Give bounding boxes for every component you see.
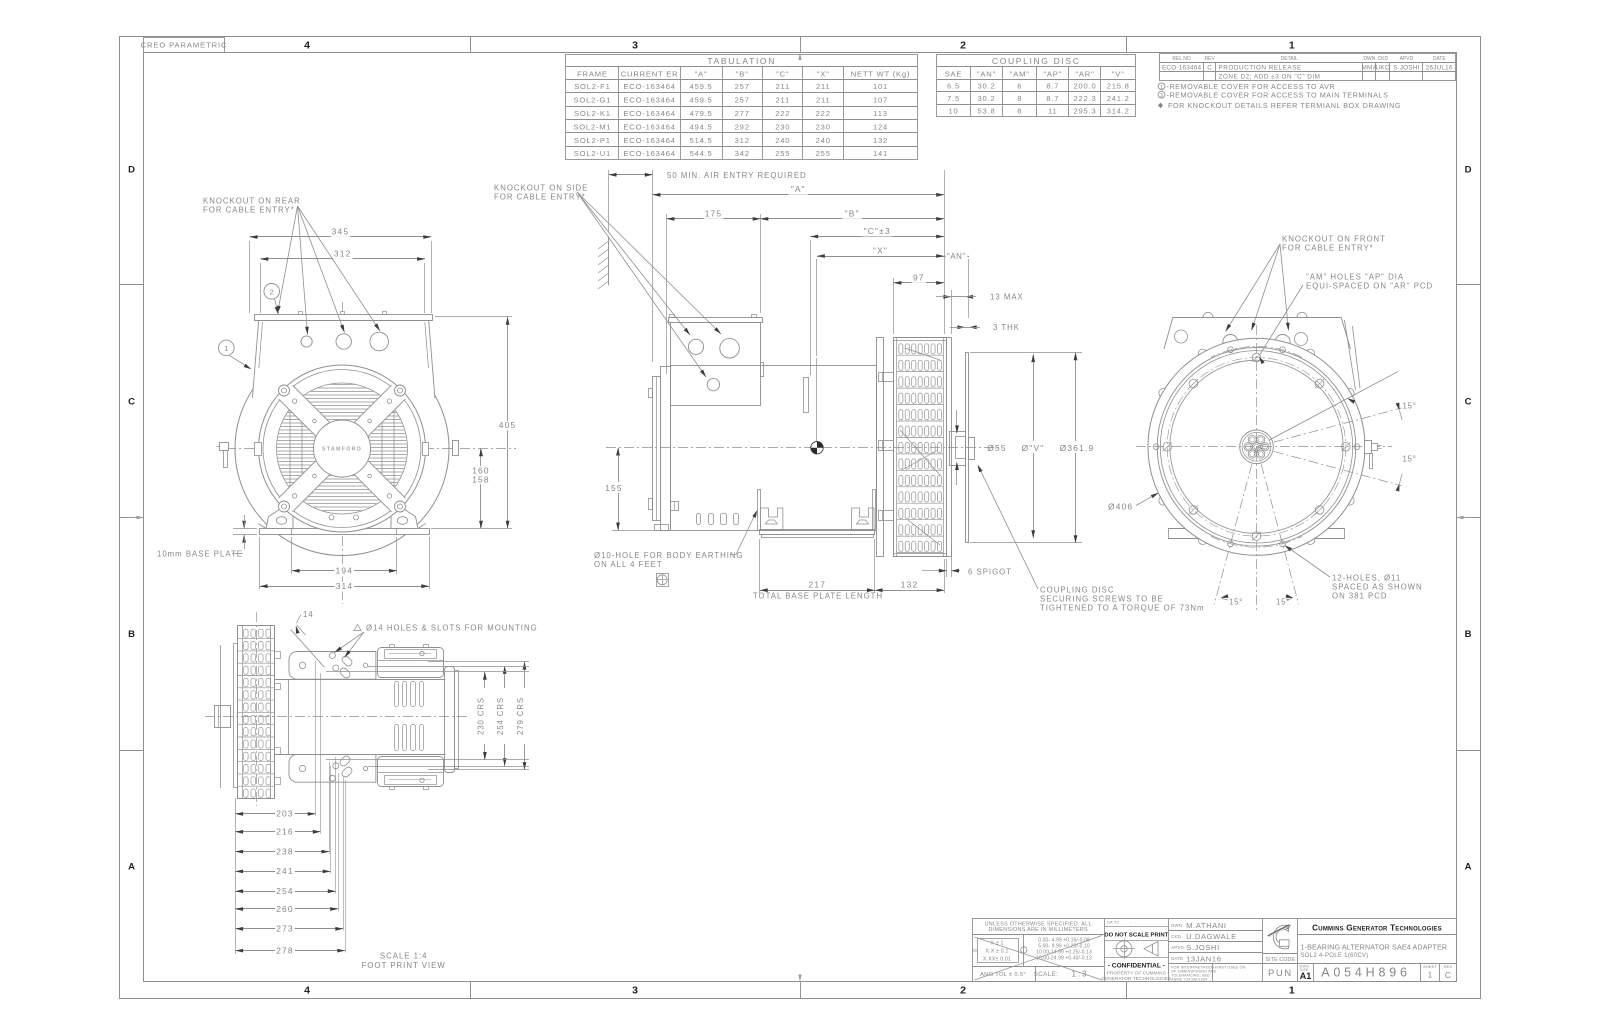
svg-text:B: B	[1465, 629, 1472, 640]
svg-text:314: 314	[336, 581, 354, 591]
svg-text:REV: REV	[1444, 964, 1453, 969]
svg-text:"B": "B"	[736, 69, 749, 78]
svg-text:U.DAGWALE: U.DAGWALE	[1186, 932, 1237, 941]
svg-text:1: 1	[1160, 85, 1163, 91]
svg-text:141: 141	[873, 149, 888, 158]
svg-text:3: 3	[632, 40, 638, 52]
svg-text:Ø361.9: Ø361.9	[1060, 443, 1095, 453]
svg-text:10.00-14.99 +0.25/-0.13: 10.00-14.99 +0.25/-0.13	[1036, 950, 1092, 956]
svg-text:15°: 15°	[1276, 598, 1290, 607]
svg-text:1: 1	[1428, 971, 1433, 980]
svg-text:279 CRS: 279 CRS	[516, 697, 525, 735]
svg-text:15°: 15°	[1403, 402, 1417, 411]
svg-text:30.2: 30.2	[978, 82, 996, 91]
svg-text:97: 97	[913, 272, 925, 282]
svg-text:SITE CODE: SITE CODE	[1265, 957, 1295, 963]
svg-text:KNOCKOUT ON REAR: KNOCKOUT ON REAR	[203, 197, 301, 206]
svg-text:ECO-163464: ECO-163464	[623, 96, 675, 105]
svg-text:X.XX± 0.01: X.XX± 0.01	[983, 957, 1011, 963]
svg-text:200.0: 200.0	[1073, 82, 1096, 91]
svg-text:S.JOSHI: S.JOSHI	[1393, 65, 1419, 72]
svg-text:DIMENSIONS ARE IN MILLIMETERS: DIMENSIONS ARE IN MILLIMETERS	[988, 927, 1088, 933]
svg-text:SOL2-F1: SOL2-F1	[574, 82, 610, 91]
svg-text:"A": "A"	[791, 184, 806, 194]
svg-text:101: 101	[873, 82, 888, 91]
svg-text:ANG TOL ± 0.5°: ANG TOL ± 0.5°	[980, 972, 1026, 978]
svg-text:"X": "X"	[873, 245, 888, 255]
svg-text:312: 312	[334, 248, 352, 258]
svg-text:C: C	[128, 397, 135, 408]
svg-text:M.ATHANI: M.ATHANI	[1186, 921, 1227, 930]
svg-text:DATE: DATE	[1171, 956, 1183, 961]
svg-text:26JUL16: 26JUL16	[1426, 65, 1453, 72]
svg-text:SPACED AS SHOWN: SPACED AS SHOWN	[1332, 583, 1423, 592]
svg-text:10mm BASE PLATE: 10mm BASE PLATE	[157, 550, 243, 559]
svg-text:8.7: 8.7	[1046, 82, 1059, 91]
svg-text:459.5: 459.5	[690, 96, 713, 105]
svg-text:SOL2-U1: SOL2-U1	[574, 149, 611, 158]
svg-text:Ø14 HOLES & SLOTS FOR MOUNTING: Ø14 HOLES & SLOTS FOR MOUNTING	[366, 624, 538, 633]
svg-text:494.5: 494.5	[690, 122, 713, 131]
svg-text:292: 292	[735, 122, 750, 131]
svg-text:FOOT PRINT VIEW: FOOT PRINT VIEW	[362, 961, 446, 970]
svg-text:15°: 15°	[1403, 455, 1417, 464]
svg-text:"AN": "AN"	[977, 69, 996, 78]
svg-text:479.5: 479.5	[690, 109, 713, 118]
svg-text:132: 132	[901, 580, 919, 590]
svg-text:211: 211	[776, 82, 791, 91]
svg-text:211: 211	[816, 96, 831, 105]
svg-text:113: 113	[873, 109, 888, 118]
svg-text:53.8: 53.8	[978, 107, 996, 116]
svg-text:SOL2-K1: SOL2-K1	[574, 109, 611, 118]
svg-text:Ø"V": Ø"V"	[1022, 443, 1045, 453]
svg-text:"AR": "AR"	[1075, 69, 1094, 78]
svg-text:215.8: 215.8	[1107, 82, 1130, 91]
svg-text:1: 1	[224, 344, 228, 353]
svg-text:C: C	[1207, 65, 1212, 72]
svg-text:A: A	[1465, 861, 1472, 872]
svg-text:DWN: DWN	[1171, 923, 1182, 928]
svg-text:124: 124	[873, 122, 888, 131]
svg-text:211: 211	[776, 96, 791, 105]
svg-text:COUPLING DISC: COUPLING DISC	[1040, 586, 1115, 595]
svg-text:SECURING SCREWS TO BE: SECURING SCREWS TO BE	[1040, 595, 1164, 604]
svg-text:260: 260	[276, 904, 294, 914]
svg-text:PROPERTY OF CUMMINS: PROPERTY OF CUMMINS	[1107, 970, 1166, 975]
svg-text:217: 217	[809, 580, 827, 590]
svg-text:COUPLING DISC: COUPLING DISC	[992, 56, 1081, 66]
svg-text:"B": "B"	[845, 208, 860, 218]
svg-text:345: 345	[332, 226, 350, 236]
svg-text:13 MAX: 13 MAX	[990, 293, 1024, 302]
svg-text:2: 2	[960, 985, 966, 997]
svg-text:255: 255	[816, 149, 831, 158]
svg-text:222: 222	[775, 109, 790, 118]
svg-text:S.JOSHI: S.JOSHI	[1186, 943, 1220, 952]
svg-text:222.3: 222.3	[1073, 94, 1096, 103]
svg-text:230: 230	[816, 122, 831, 131]
svg-text:UKO: UKO	[1376, 65, 1390, 72]
svg-text:REV: REV	[1205, 56, 1216, 62]
svg-text:544.5: 544.5	[690, 149, 713, 158]
svg-text:"AM": "AM"	[1010, 69, 1030, 78]
svg-text:-: -	[1130, 921, 1132, 925]
svg-text:3: 3	[632, 985, 638, 997]
svg-text:ECO-163464: ECO-163464	[623, 136, 675, 145]
svg-text:M: M	[973, 948, 977, 953]
svg-text:1: 1	[1289, 40, 1295, 52]
svg-text:405: 405	[499, 420, 517, 430]
svg-text:TIGHTENED TO A TORQUE OF 73Nm: TIGHTENED TO A TORQUE OF 73Nm	[1040, 604, 1204, 613]
svg-text:12-HOLES, Ø11: 12-HOLES, Ø11	[1332, 574, 1401, 583]
svg-text:254 CRS: 254 CRS	[496, 697, 505, 735]
svg-text:SCALE 1:4: SCALE 1:4	[380, 952, 428, 961]
svg-text:CURRENT ER: CURRENT ER	[621, 69, 679, 78]
svg-text:3: 3	[1160, 93, 1163, 99]
svg-text:B: B	[128, 629, 135, 640]
svg-text:238: 238	[276, 846, 294, 856]
svg-text:SHEET: SHEET	[1423, 964, 1437, 969]
svg-text:SCALE:: SCALE:	[1034, 971, 1058, 978]
svg-text:FIRST USED ON: FIRST USED ON	[1215, 965, 1246, 969]
svg-text:158: 158	[472, 475, 490, 485]
svg-text:Ø55: Ø55	[987, 443, 1006, 453]
svg-text:8: 8	[1017, 94, 1022, 103]
svg-text:1: 1	[1289, 985, 1295, 997]
svg-text:273: 273	[276, 924, 294, 934]
svg-text:DO NOT SCALE PRINT: DO NOT SCALE PRINT	[1104, 933, 1168, 939]
svg-text:Ø406: Ø406	[1108, 502, 1133, 512]
svg-text:6 SPIGOT: 6 SPIGOT	[968, 568, 1012, 577]
svg-text:ON ALL 4 FEET: ON ALL 4 FEET	[594, 560, 663, 569]
svg-text:194: 194	[336, 566, 354, 576]
svg-text:2: 2	[960, 40, 966, 52]
svg-text:241: 241	[276, 866, 294, 876]
svg-text:257: 257	[735, 82, 750, 91]
svg-text:6.5: 6.5	[947, 82, 960, 91]
svg-text:ECO-163464: ECO-163464	[623, 122, 675, 131]
svg-text:REL NO: REL NO	[1172, 56, 1191, 62]
svg-text:1-BEARING ALTERNATOR SAE4 ADAP: 1-BEARING ALTERNATOR SAE4 ADAPTER	[1301, 943, 1448, 952]
svg-text:TOTAL BASE PLATE LENGTH: TOTAL BASE PLATE LENGTH	[753, 592, 883, 601]
svg-text:6: 6	[1017, 82, 1022, 91]
svg-text:TABULATION: TABULATION	[707, 56, 776, 66]
svg-text:10: 10	[948, 107, 958, 116]
svg-text:203: 203	[276, 809, 294, 819]
svg-text:A: A	[128, 861, 135, 872]
svg-text:"A": "A"	[695, 69, 708, 78]
svg-text:C: C	[1465, 397, 1472, 408]
svg-text:PRODUCTION RELEASE: PRODUCTION RELEASE	[1219, 65, 1302, 72]
svg-text:107: 107	[873, 96, 888, 105]
svg-text:SOL2-M1: SOL2-M1	[573, 122, 611, 131]
svg-text:257: 257	[735, 96, 750, 105]
svg-text:13JAN16: 13JAN16	[1186, 954, 1221, 963]
svg-text:-REMOVABLE COVER FOR ACCESS TO: -REMOVABLE COVER FOR ACCESS TO MAIN TERM…	[1167, 91, 1389, 100]
svg-text:11: 11	[1048, 107, 1057, 116]
svg-text:254: 254	[276, 886, 294, 896]
svg-text:ECO-163464: ECO-163464	[623, 82, 675, 91]
svg-text:SAE: SAE	[945, 69, 963, 78]
svg-text:CKD: CKD	[1171, 934, 1181, 939]
svg-text:DETAIL: DETAIL	[1281, 56, 1298, 62]
svg-text:APVD: APVD	[1400, 56, 1414, 62]
svg-text:14: 14	[303, 610, 314, 619]
svg-text:1:3: 1:3	[1071, 970, 1088, 979]
svg-text:314.2: 314.2	[1107, 107, 1130, 116]
svg-text:FOR KNOCKOUT DETAILS REFER TER: FOR KNOCKOUT DETAILS REFER TERMIANL BOX …	[1168, 101, 1401, 110]
svg-text:241.2: 241.2	[1107, 94, 1130, 103]
svg-text:Ø10-HOLE FOR BODY EARTHING: Ø10-HOLE FOR BODY EARTHING	[594, 551, 744, 560]
svg-text:"AM" HOLES "AP" DIA: "AM" HOLES "AP" DIA	[1306, 273, 1404, 282]
svg-text:459.5: 459.5	[690, 82, 713, 91]
svg-text:4: 4	[304, 985, 310, 997]
svg-text:SOL2-P1: SOL2-P1	[574, 136, 611, 145]
svg-text:SOL2 4-POLE 1(60CV): SOL2 4-POLE 1(60CV)	[1301, 953, 1369, 959]
svg-text:FOR CABLE ENTRY*: FOR CABLE ENTRY*	[203, 206, 295, 215]
svg-text:FOR CABLE ENTRY*: FOR CABLE ENTRY*	[1282, 244, 1374, 253]
svg-text:211: 211	[816, 82, 831, 91]
svg-text:132: 132	[873, 136, 888, 145]
svg-text:"C": "C"	[776, 69, 789, 78]
svg-text:155: 155	[605, 483, 623, 493]
svg-text:295.3: 295.3	[1073, 107, 1096, 116]
svg-text:X ± 1: X ± 1	[990, 941, 1003, 947]
svg-text:D: D	[128, 165, 135, 176]
svg-text:A054H896: A054H896	[1321, 966, 1410, 980]
svg-text:D: D	[1465, 165, 1472, 176]
svg-text:CREO PARAMETRIC: CREO PARAMETRIC	[141, 41, 228, 50]
svg-text:175: 175	[705, 208, 723, 218]
svg-text:ZONE D2; ADD ±3 ON "C" DIM: ZONE D2; ADD ±3 ON "C" DIM	[1219, 74, 1321, 81]
svg-text:FOR CABLE ENTRY*: FOR CABLE ENTRY*	[494, 193, 586, 202]
svg-text:"X": "X"	[817, 69, 830, 78]
svg-text:8.7: 8.7	[1046, 94, 1059, 103]
svg-text:DATE: DATE	[1433, 56, 1447, 62]
svg-text:STAMFORD: STAMFORD	[322, 447, 362, 453]
svg-text:"AN": "AN"	[947, 252, 966, 261]
svg-text:222: 222	[816, 109, 831, 118]
svg-text:GA TO: GA TO	[1107, 921, 1119, 925]
svg-text:4: 4	[304, 40, 310, 52]
svg-text:"C"±3: "C"±3	[864, 226, 891, 236]
svg-text:7.5: 7.5	[947, 94, 960, 103]
svg-text:2: 2	[270, 287, 274, 296]
svg-text:30.2: 30.2	[978, 94, 996, 103]
svg-text:278: 278	[276, 945, 294, 955]
svg-text:ECO-163464: ECO-163464	[623, 149, 675, 158]
svg-text:KNOCKOUT ON FRONT: KNOCKOUT ON FRONT	[1282, 235, 1386, 244]
svg-text:"V": "V"	[1112, 69, 1125, 78]
svg-text:PUN: PUN	[1268, 968, 1293, 979]
svg-text:15°: 15°	[1229, 598, 1243, 607]
svg-text:312: 312	[735, 136, 750, 145]
svg-text:8: 8	[1017, 107, 1022, 116]
svg-text:"AP": "AP"	[1043, 69, 1062, 78]
svg-text:EQUI-SPACED ON "AR" PCD: EQUI-SPACED ON "AR" PCD	[1306, 282, 1433, 291]
svg-text:240: 240	[816, 136, 831, 145]
svg-text:ON 381 PCD: ON 381 PCD	[1332, 592, 1388, 601]
svg-text:X.X ± 0.1: X.X ± 0.1	[985, 949, 1008, 955]
svg-text:255: 255	[775, 149, 790, 158]
svg-text:C: C	[1445, 970, 1451, 980]
svg-text:240: 240	[775, 136, 790, 145]
svg-text:216: 216	[276, 827, 294, 837]
svg-text:ASME Y14.5M-1994: ASME Y14.5M-1994	[1171, 977, 1207, 981]
svg-text:342: 342	[735, 149, 750, 158]
svg-text:514.5: 514.5	[690, 136, 713, 145]
svg-text:APVD: APVD	[1171, 945, 1184, 950]
svg-text:3 THK: 3 THK	[993, 323, 1020, 332]
svg-text:50 MIN. AIR ENTRY REQUIRED: 50 MIN. AIR ENTRY REQUIRED	[667, 171, 807, 180]
svg-text:CKD: CKD	[1378, 56, 1389, 62]
svg-text:- CONFIDENTIAL -: - CONFIDENTIAL -	[1108, 962, 1165, 969]
svg-text:ECO-163464: ECO-163464	[623, 109, 675, 118]
svg-text:FRAME: FRAME	[577, 69, 608, 78]
svg-text:NETT WT (Kg): NETT WT (Kg)	[851, 69, 911, 78]
svg-text:SOL2-G1: SOL2-G1	[574, 96, 612, 105]
svg-text:230: 230	[775, 122, 790, 131]
svg-text:A1: A1	[1300, 971, 1312, 981]
svg-text:277: 277	[735, 109, 750, 118]
svg-text:DWN: DWN	[1363, 56, 1375, 62]
svg-text:KNOCKOUT ON SIDE: KNOCKOUT ON SIDE	[494, 184, 588, 193]
svg-text:GENERATOR TECHNOLOGIES: GENERATOR TECHNOLOGIES	[1101, 976, 1171, 981]
svg-text:230 CRS: 230 CRS	[476, 697, 485, 735]
svg-text:ECO-163464: ECO-163464	[1162, 65, 1202, 72]
